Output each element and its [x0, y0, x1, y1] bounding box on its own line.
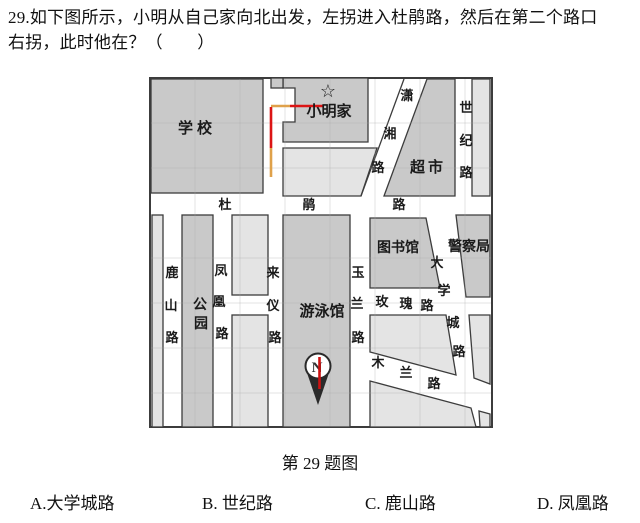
- west-strip-block: [152, 215, 163, 427]
- lushan-road-label: 鹿山路: [164, 265, 179, 345]
- map-figure: ☆ 学校 小明家 超市 游泳馆 图书馆 警察局 公园 杜鹃路 潇湘路 世纪路 鹿…: [0, 0, 640, 523]
- southeast-corner-block: [479, 411, 490, 427]
- shiji-road-label: 世纪路: [459, 100, 473, 180]
- figure-caption: 第 29 题图: [0, 449, 640, 474]
- supermarket-label: 超市: [409, 158, 446, 176]
- option-b: B. 世纪路: [202, 489, 273, 514]
- police-label: 警察局: [448, 238, 490, 255]
- home-block-tab: [271, 78, 283, 88]
- option-d: D. 凤凰路: [537, 489, 609, 514]
- mid-north-block: [232, 215, 268, 295]
- option-a: A.大学城路: [30, 489, 115, 514]
- library-label: 图书馆: [377, 239, 419, 256]
- home-star-icon: ☆: [320, 81, 336, 101]
- compass-north-label: N: [312, 360, 323, 376]
- pool-label: 游泳馆: [299, 302, 344, 320]
- option-c: C. 鹿山路: [365, 489, 436, 514]
- east-strip-block: [472, 79, 490, 196]
- mid-south-block: [232, 315, 268, 427]
- answer-options: A.大学城路 B. 世纪路 C. 鹿山路 D. 凤凰路: [0, 489, 640, 513]
- worksheet-page: 29.如下图所示，小明从自己家向北出发，左拐进入杜鹃路，然后在第二个路口 右拐，…: [0, 0, 640, 523]
- yulan-road-label: 玉兰路: [350, 265, 365, 345]
- home-label: 小明家: [306, 102, 351, 120]
- school-label: 学校: [178, 119, 216, 137]
